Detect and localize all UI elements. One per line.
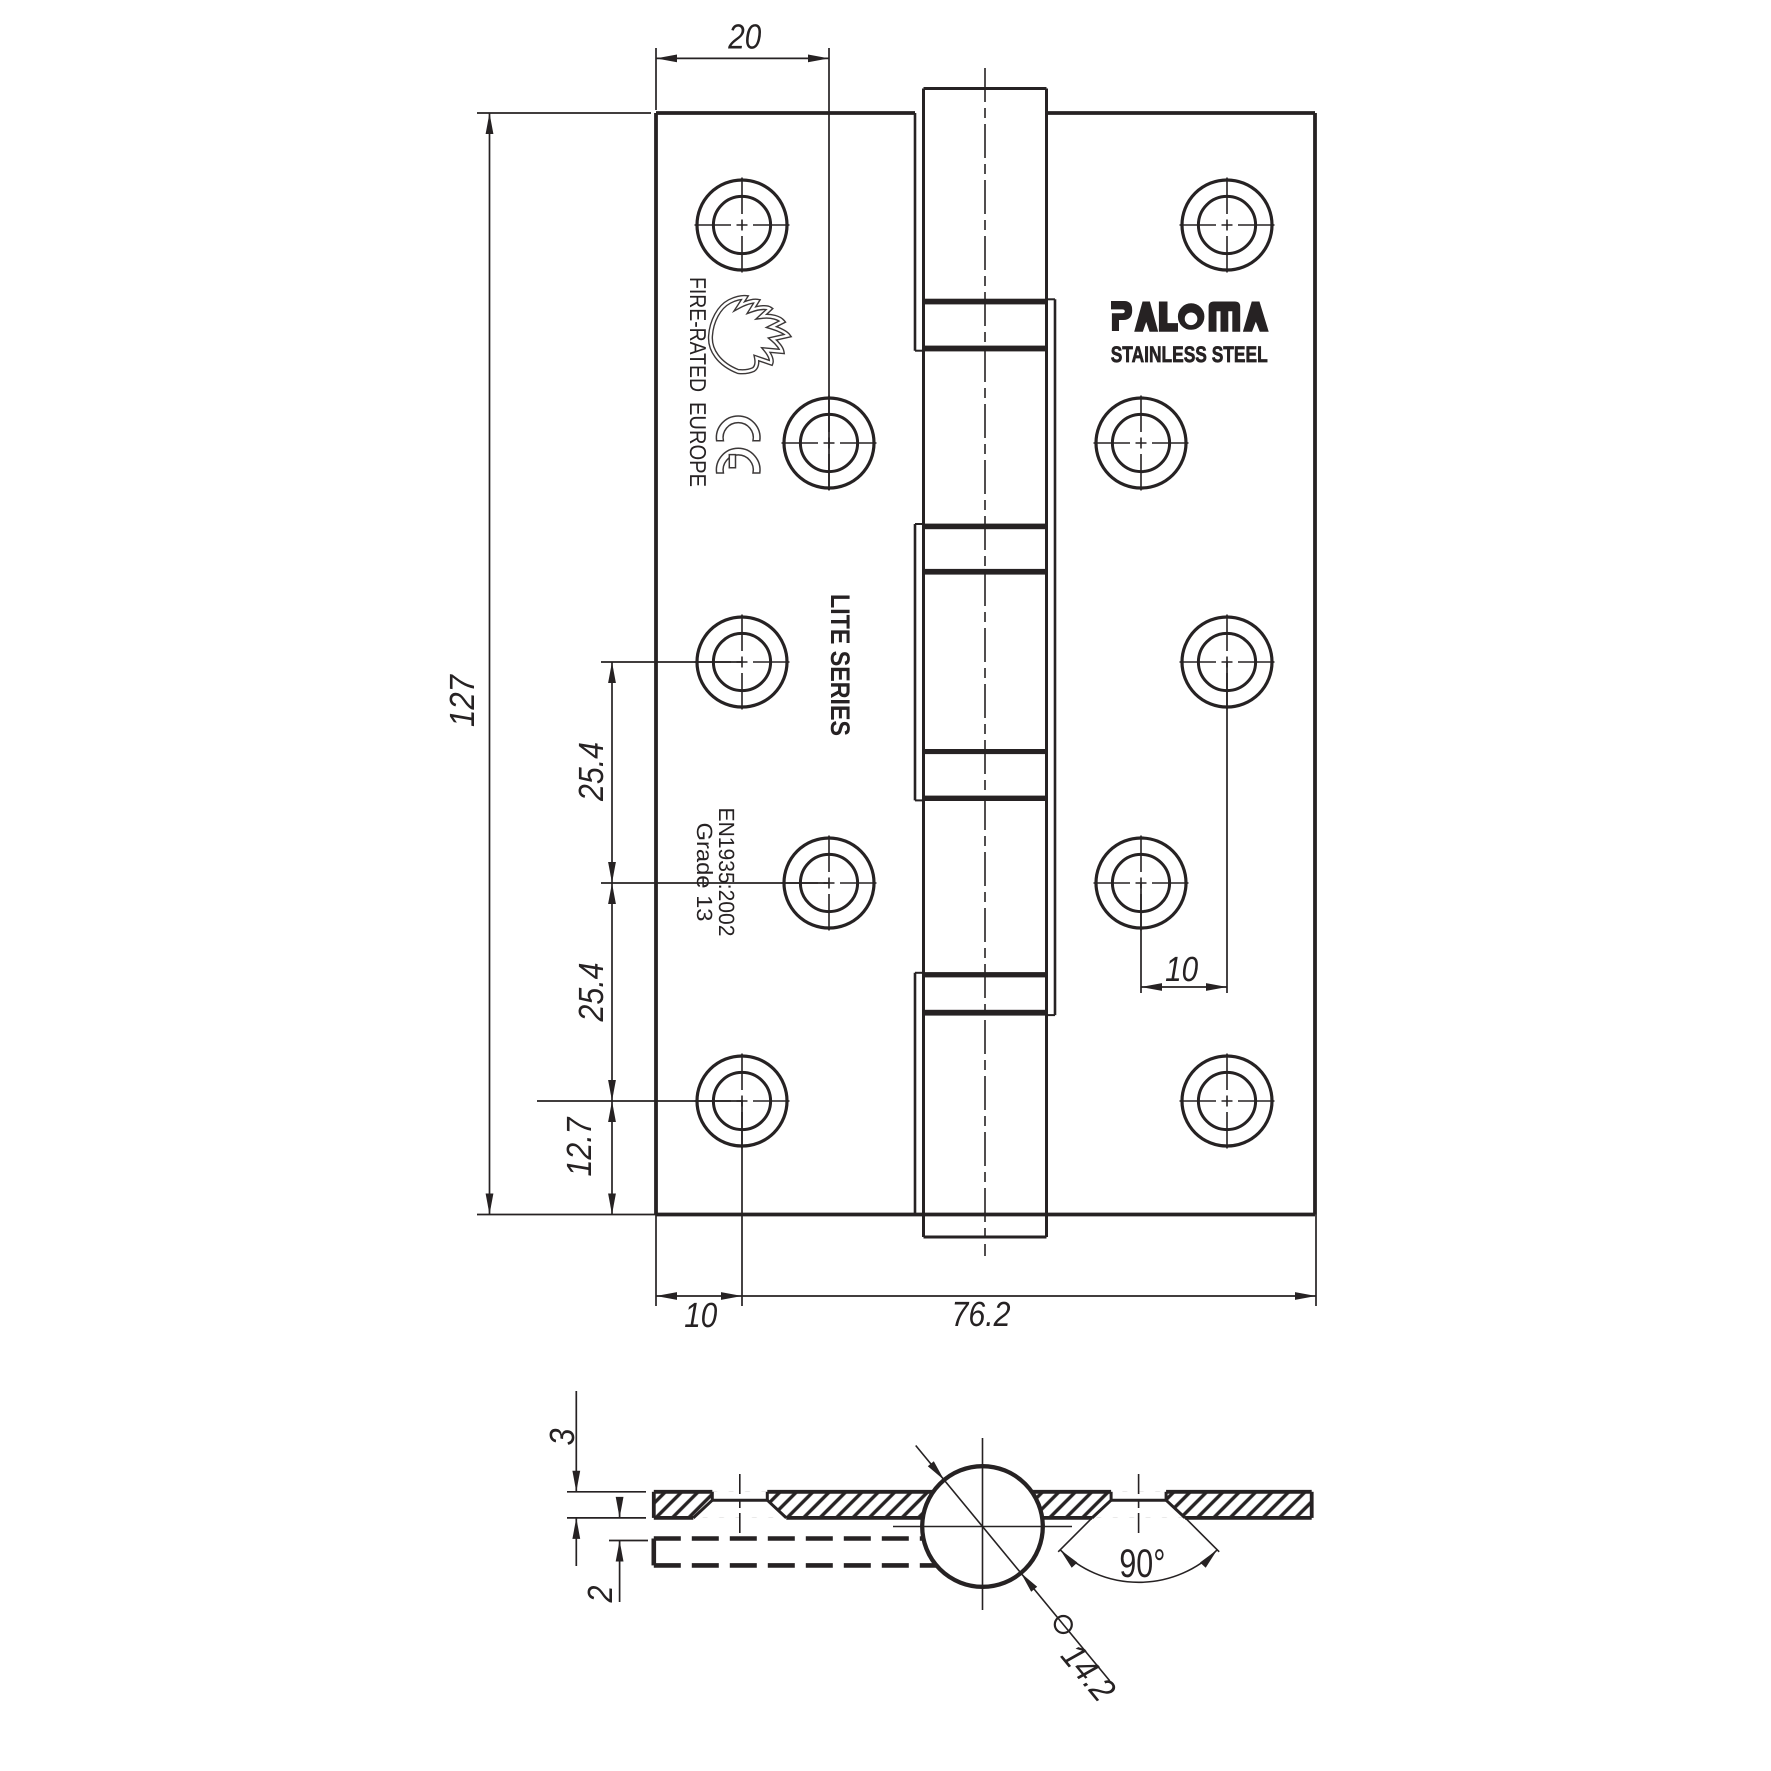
svg-text:25.4: 25.4	[572, 742, 611, 802]
svg-text:Grade 13: Grade 13	[692, 823, 717, 922]
svg-text:2: 2	[581, 1586, 620, 1604]
svg-text:76.2: 76.2	[952, 1295, 1011, 1334]
svg-text:3: 3	[543, 1428, 582, 1445]
svg-text:25.4: 25.4	[572, 963, 611, 1023]
svg-text:90°: 90°	[1119, 1542, 1165, 1586]
svg-text:LITE SERIES: LITE SERIES	[825, 594, 855, 736]
svg-text:STAINLESS STEEL: STAINLESS STEEL	[1111, 342, 1268, 367]
svg-text:20: 20	[727, 18, 761, 57]
svg-text:12.7: 12.7	[560, 1116, 599, 1176]
svg-text:127: 127	[443, 674, 482, 727]
svg-text:10: 10	[684, 1296, 717, 1335]
svg-text:10: 10	[1165, 950, 1198, 989]
svg-text:FIRE-RATED: FIRE-RATED	[685, 277, 711, 392]
svg-text:EUROPE: EUROPE	[685, 402, 711, 487]
svg-text:14.2: 14.2	[1053, 1636, 1123, 1709]
